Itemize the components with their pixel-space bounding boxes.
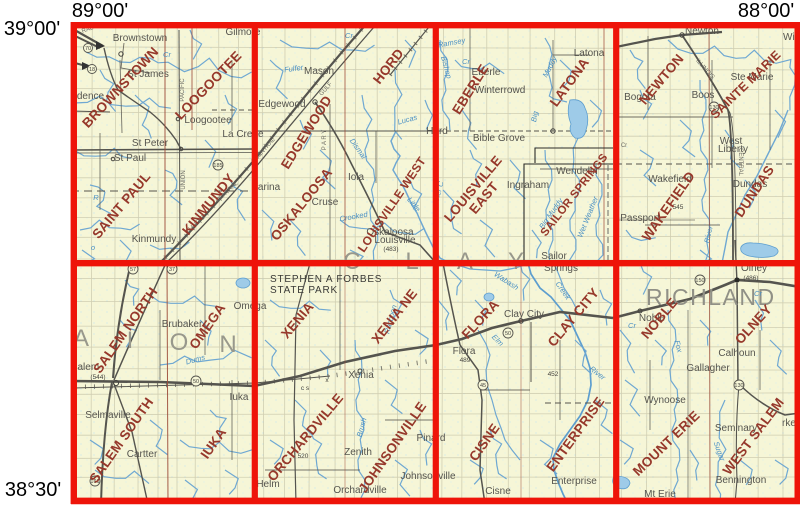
svg-text:(486): (486)	[743, 275, 758, 282]
svg-text:489: 489	[460, 357, 471, 364]
svg-text:Iuka: Iuka	[230, 392, 249, 403]
svg-text:Loogootee: Loogootee	[184, 115, 232, 126]
svg-text:45: 45	[480, 383, 486, 389]
svg-text:Cr: Cr	[621, 143, 627, 149]
svg-text:o: o	[91, 243, 95, 252]
svg-text:rke: rke	[782, 418, 796, 429]
svg-text:(544): (544)	[90, 374, 105, 381]
svg-text:Cr: Cr	[345, 31, 353, 40]
svg-text:37: 37	[169, 267, 175, 273]
svg-text:88°00': 88°00'	[738, 0, 794, 22]
svg-text:CENTRAL: CENTRAL	[737, 148, 743, 177]
svg-text:Enterprise: Enterprise	[551, 476, 597, 487]
svg-text:150: 150	[695, 278, 704, 284]
svg-text:Ingraham: Ingraham	[507, 180, 549, 191]
svg-text:Zenith: Zenith	[344, 447, 372, 458]
svg-text:UNION: UNION	[181, 170, 187, 189]
svg-text:18: 18	[89, 67, 95, 73]
svg-text:STEPHEN A FORBES: STEPHEN A FORBES	[270, 274, 382, 285]
svg-text:Wynoose: Wynoose	[644, 395, 686, 406]
svg-text:Louisville: Louisville	[374, 235, 416, 246]
svg-text:Gallagher: Gallagher	[686, 363, 730, 374]
svg-text:Xenia: Xenia	[348, 370, 374, 381]
svg-text:Clay City: Clay City	[504, 309, 544, 320]
svg-text:Winterrowd: Winterrowd	[475, 85, 526, 96]
svg-text:Brownstown: Brownstown	[113, 33, 167, 44]
svg-text:130: 130	[734, 383, 743, 389]
svg-text:Iola: Iola	[348, 172, 365, 183]
svg-text:Bennington: Bennington	[716, 475, 767, 486]
svg-text:Boos: Boos	[692, 90, 715, 101]
svg-text:Cr: Cr	[754, 289, 762, 298]
svg-text:St Paul: St Paul	[114, 153, 146, 164]
svg-text:Pinard: Pinard	[417, 433, 446, 444]
svg-text:Cr: Cr	[163, 50, 171, 59]
svg-text:89°00': 89°00'	[72, 0, 128, 22]
svg-text:185: 185	[213, 163, 222, 169]
svg-text:Edgewood: Edgewood	[258, 99, 305, 110]
svg-text:STATE PARK: STATE PARK	[270, 285, 338, 296]
svg-text:38°30': 38°30'	[5, 479, 61, 501]
svg-text:Flora: Flora	[453, 346, 476, 357]
svg-text:Calhoun: Calhoun	[718, 348, 755, 359]
svg-text:Cartter: Cartter	[127, 449, 158, 460]
svg-text:Cruse: Cruse	[312, 197, 339, 208]
svg-text:Omega: Omega	[234, 301, 267, 312]
svg-text:452: 452	[548, 371, 559, 378]
svg-text:Mason: Mason	[304, 66, 334, 77]
svg-text:Cisne: Cisne	[485, 486, 511, 497]
svg-text:Johnsonville: Johnsonville	[400, 471, 455, 482]
svg-text:R: R	[93, 193, 99, 202]
svg-text:(483): (483)	[383, 246, 398, 253]
svg-text:57: 57	[130, 267, 136, 273]
svg-text:50: 50	[505, 331, 511, 337]
svg-text:N: N	[219, 331, 236, 358]
svg-text:Cr: Cr	[628, 321, 636, 330]
svg-text:Kinmundy: Kinmundy	[132, 234, 176, 245]
svg-text:Bible Grove: Bible Grove	[473, 133, 526, 144]
svg-text:St Peter: St Peter	[132, 138, 169, 149]
svg-text:c s: c s	[301, 385, 310, 392]
svg-text:Cr: Cr	[462, 57, 470, 66]
svg-text:O: O	[170, 329, 189, 356]
svg-text:P A R Y: P A R Y	[322, 130, 328, 150]
svg-text:70: 70	[85, 46, 91, 52]
svg-text:50: 50	[193, 379, 199, 385]
svg-text:39°00': 39°00'	[4, 18, 60, 40]
svg-text:Selmaville: Selmaville	[85, 410, 131, 421]
